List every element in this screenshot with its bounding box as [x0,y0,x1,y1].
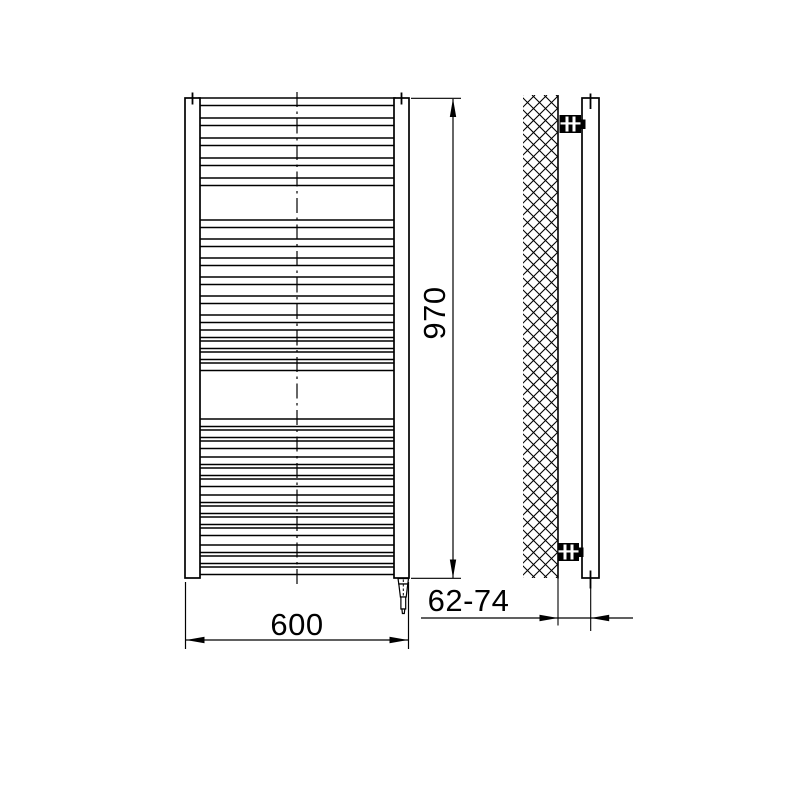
hatch-line [532,95,800,578]
hatch-line [424,95,800,578]
wall-hatch [28,95,800,578]
hatch-line [460,95,800,578]
element-tip [402,609,405,614]
hatch-line [508,95,800,578]
hatch-line [520,95,800,578]
arrowhead-right [390,637,409,643]
width-dim-label: 600 [270,607,323,642]
hatch-line [400,95,800,578]
arrowhead-left [186,637,205,643]
hatch-line [448,95,800,578]
arrowhead-down [450,560,456,579]
hatch-line [424,95,800,578]
bottom-bracket [558,543,584,561]
hatch-line [448,95,800,578]
technical-drawing-page: 970 600 62-74 [0,0,800,800]
height-dim-label: 970 [417,286,452,339]
hatch-line [520,95,800,578]
side-view [28,94,800,589]
hatch-line [496,95,800,578]
bracket-slot [561,122,581,124]
hatch-line [484,95,800,578]
hatch-line [532,95,800,578]
hatch-line [412,95,800,578]
hatch-line [496,95,800,578]
side-profile [582,98,599,578]
hatch-line [568,95,800,578]
hatch-line [412,95,800,578]
element-stem [401,597,406,609]
arrowhead-right [540,615,559,621]
electric-element [398,579,409,614]
dimension-depth: 62-74 [421,579,633,632]
right-collector-tube [394,98,409,578]
arrowhead-up [450,99,456,118]
hatch-line [472,95,800,578]
left-collector-tube [185,98,200,578]
dimension-height: 970 [411,98,461,578]
hatch-line [568,95,800,578]
hatch-line [484,95,800,578]
drawing-canvas: 970 600 62-74 [0,0,800,800]
hatch-line [508,95,800,578]
bracket-tab [579,548,584,558]
depth-dim-label: 62-74 [428,583,510,618]
bracket-tab [581,120,586,130]
hatch-line [472,95,800,578]
hatch-line [400,95,800,578]
hatch-line [436,95,800,578]
front-view [185,92,409,614]
arrowhead-left [591,615,610,621]
hatch-line [460,95,800,578]
hatch-line [436,95,800,578]
bracket-slot [559,550,579,552]
dimension-width: 600 [186,582,409,649]
